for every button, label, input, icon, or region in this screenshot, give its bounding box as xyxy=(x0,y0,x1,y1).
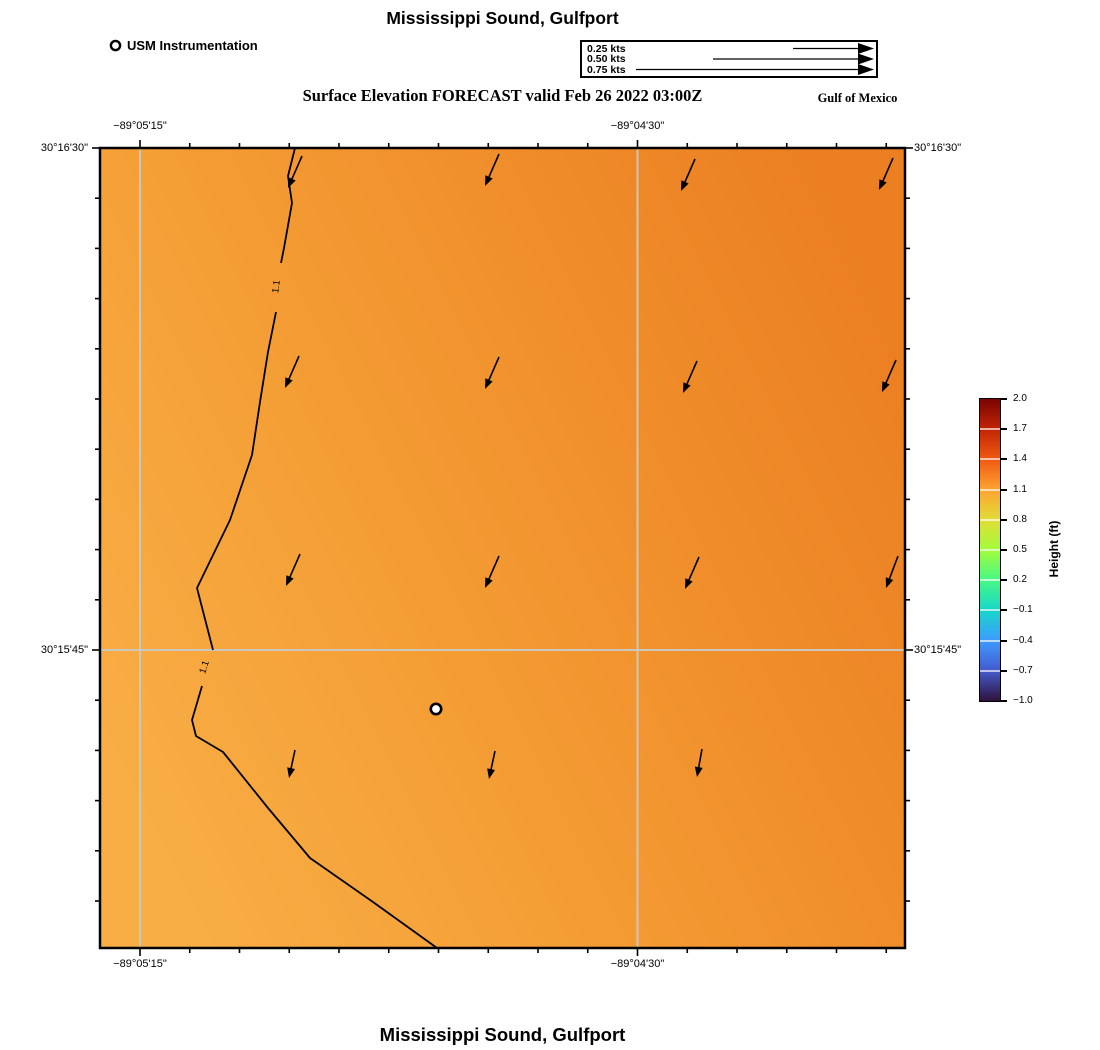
colorbar-tick-label: 1.4 xyxy=(1013,454,1053,464)
colorbar-title: Height (ft) xyxy=(1047,521,1061,578)
y-axis-label-left: 30°15'45" xyxy=(8,644,88,656)
colorbar-tick xyxy=(1001,519,1007,521)
x-axis-label-top: −89°04'30" xyxy=(578,120,698,132)
colorbar-tick xyxy=(1001,579,1007,581)
colorbar-gridline xyxy=(980,428,1000,430)
colorbar-tick xyxy=(1001,489,1007,491)
x-axis-label-top: −89°05'15" xyxy=(80,120,200,132)
x-axis-label-bottom: −89°05'15" xyxy=(80,958,200,970)
colorbar-tick xyxy=(1001,458,1007,460)
colorbar-tick xyxy=(1001,670,1007,672)
colorbar-gridline xyxy=(980,609,1000,611)
colorbar-tick-label: −0.7 xyxy=(1013,666,1053,676)
x-axis-label-bottom: −89°04'30" xyxy=(578,958,698,970)
colorbar-gridline xyxy=(980,549,1000,551)
colorbar-gridline xyxy=(980,670,1000,672)
colorbar-gridline xyxy=(980,640,1000,642)
y-axis-label-left: 30°16'30" xyxy=(8,142,88,154)
colorbar-tick xyxy=(1001,700,1007,702)
colorbar-tick-label: 2.0 xyxy=(1013,394,1053,404)
contour-value-label: 1.1 xyxy=(270,279,283,294)
colorbar-gridline xyxy=(980,519,1000,521)
colorbar-tick-label: −1.0 xyxy=(1013,696,1053,706)
colorbar-tick xyxy=(1001,640,1007,642)
colorbar-tick-label: 1.1 xyxy=(1013,485,1053,495)
colorbar-gridline xyxy=(980,489,1000,491)
colorbar: 2.01.71.41.10.80.50.2−0.1−0.4−0.7−1.0 xyxy=(979,398,1001,702)
forecast-figure: Mississippi Sound, Gulfport USM Instrume… xyxy=(0,0,1100,1050)
colorbar-tick xyxy=(1001,609,1007,611)
station-marker xyxy=(431,704,441,714)
bottom-title: Mississippi Sound, Gulfport xyxy=(0,1024,1005,1046)
colorbar-tick xyxy=(1001,398,1007,400)
map-surface xyxy=(100,148,905,948)
colorbar-gridline xyxy=(980,458,1000,460)
y-axis-label-right: 30°16'30" xyxy=(914,142,994,154)
map-plot: 1.11.1 xyxy=(0,0,1100,1050)
colorbar-gridline xyxy=(980,579,1000,581)
colorbar-tick-label: 1.7 xyxy=(1013,424,1053,434)
colorbar-tick-label: −0.4 xyxy=(1013,636,1053,646)
colorbar-tick xyxy=(1001,428,1007,430)
colorbar-tick xyxy=(1001,549,1007,551)
colorbar-tick-label: −0.1 xyxy=(1013,605,1053,615)
